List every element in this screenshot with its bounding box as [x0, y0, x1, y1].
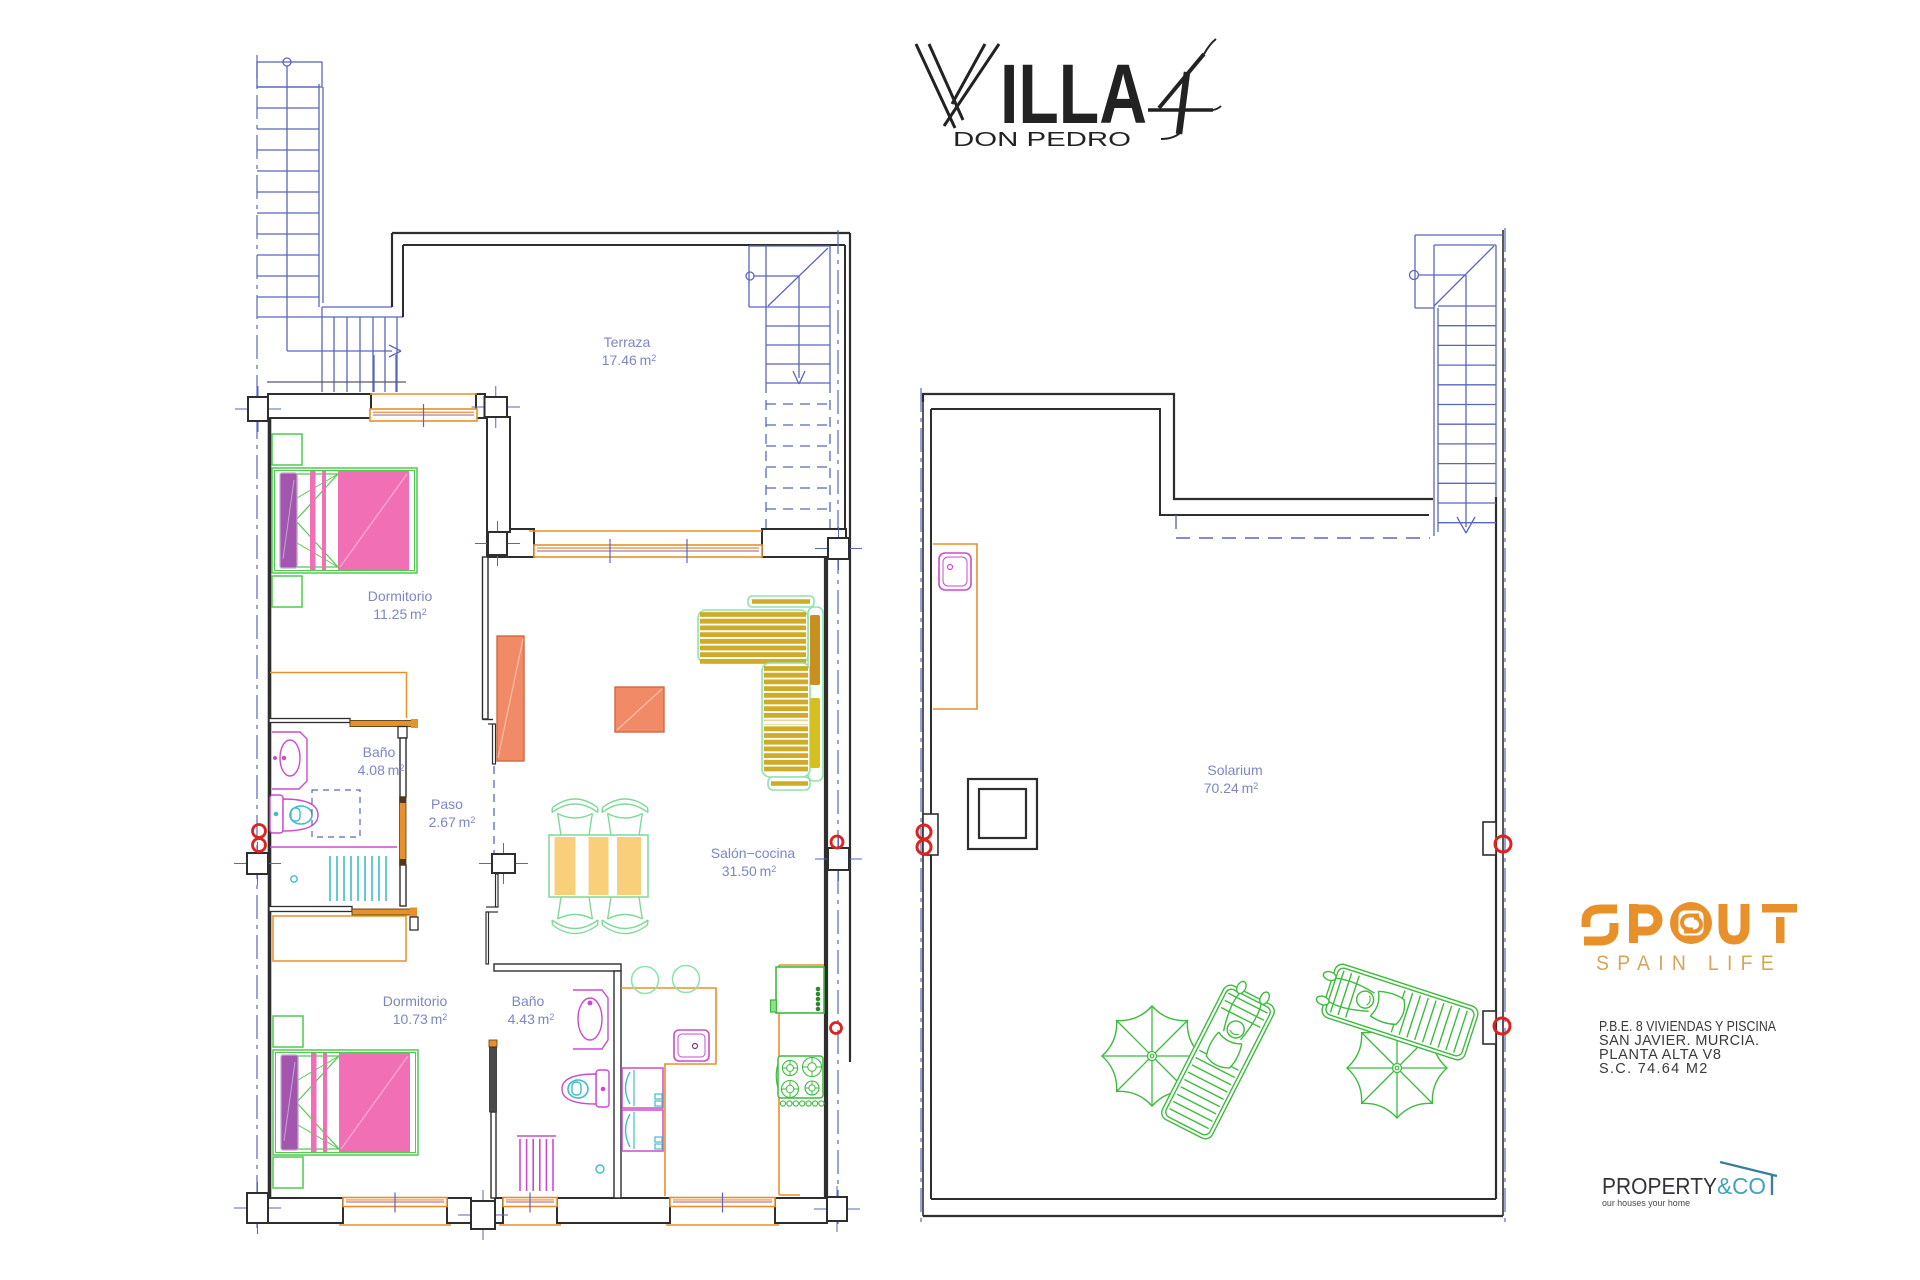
- svg-text:Salón−cocina: Salón−cocina: [711, 845, 796, 861]
- svg-text:11.25 m2: 11.25 m2: [373, 606, 426, 622]
- svg-text:2.67 m2: 2.67 m2: [429, 814, 476, 830]
- svg-text:4.43 m2: 4.43 m2: [508, 1011, 555, 1027]
- svg-text:4.08 m2: 4.08 m2: [358, 762, 405, 778]
- svg-text:PROPERTY: PROPERTY: [1602, 1173, 1717, 1199]
- svg-text:S.C. 74.64 M2: S.C. 74.64 M2: [1599, 1061, 1709, 1077]
- svg-text:31.50 m2: 31.50 m2: [722, 863, 777, 879]
- svg-text:Dormitorio: Dormitorio: [383, 993, 448, 1009]
- svg-text:10.73 m2: 10.73 m2: [393, 1011, 448, 1027]
- svg-text:&CO: &CO: [1717, 1173, 1766, 1199]
- svg-text:ILLA: ILLA: [1000, 47, 1147, 141]
- svg-text:DON PEDRO: DON PEDRO: [953, 128, 1131, 151]
- svg-text:Paso: Paso: [431, 796, 463, 812]
- svg-text:17.46 m2: 17.46 m2: [602, 352, 657, 368]
- svg-text:Baño: Baño: [363, 744, 396, 760]
- svg-text:our houses your home: our houses your home: [1602, 1198, 1690, 1209]
- svg-text:Dormitorio: Dormitorio: [368, 588, 433, 604]
- svg-text:Terraza: Terraza: [604, 334, 651, 350]
- svg-text:SPAIN LIFE: SPAIN LIFE: [1596, 952, 1782, 975]
- svg-text:70.24 m2: 70.24 m2: [1204, 780, 1259, 796]
- svg-text:Solarium: Solarium: [1207, 762, 1262, 778]
- svg-text:Baño: Baño: [512, 993, 545, 1009]
